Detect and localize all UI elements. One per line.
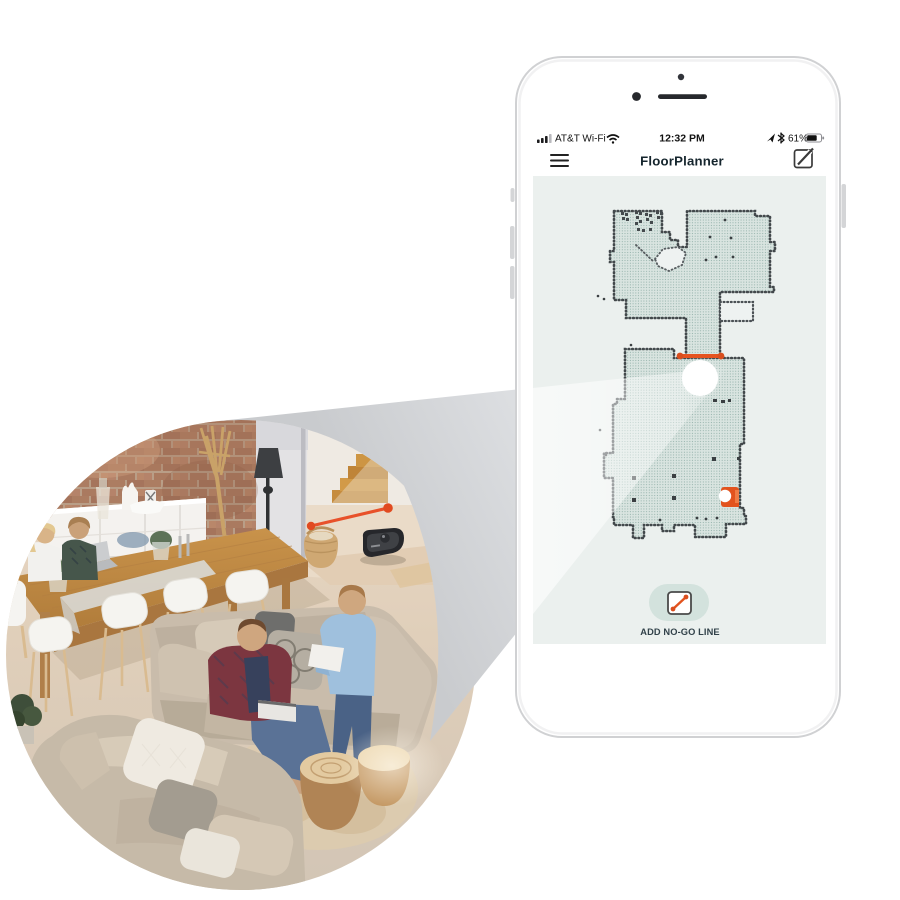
svg-text:AT&T Wi-Fi: AT&T Wi-Fi (555, 134, 606, 145)
svg-text:ADD NO-GO LINE: ADD NO-GO LINE (640, 627, 719, 637)
svg-text:12:32 PM: 12:32 PM (659, 133, 705, 145)
svg-text:FloorPlanner: FloorPlanner (640, 154, 724, 169)
svg-text:61%: 61% (788, 134, 808, 145)
